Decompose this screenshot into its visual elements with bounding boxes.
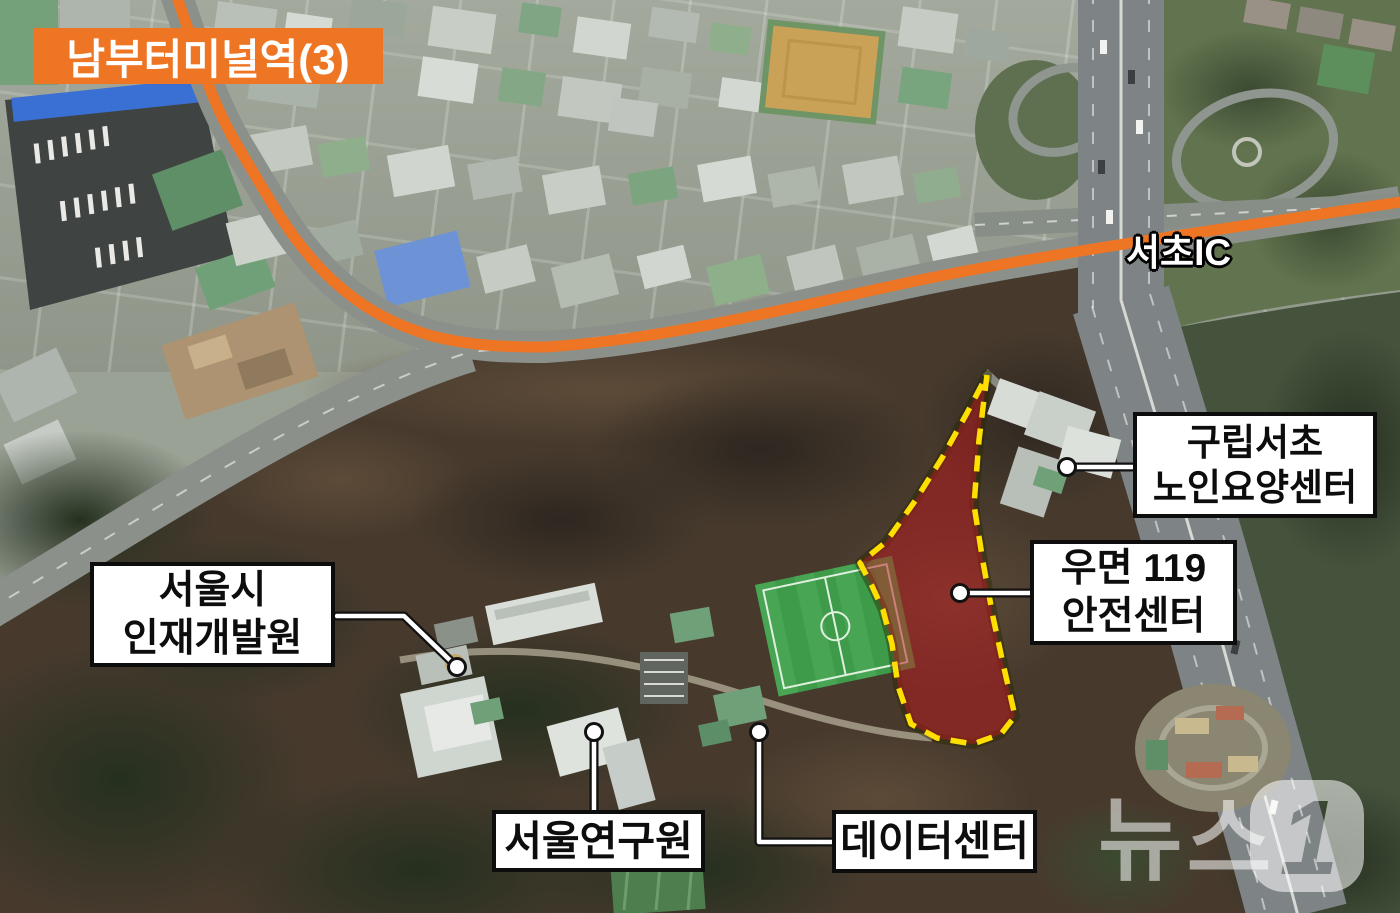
map-terrain-shape [317,136,370,178]
map-terrain-shape [898,67,953,110]
map-terrain-shape [637,245,692,290]
map-terrain-shape [762,22,883,121]
callout-seoul-hrd-center: 서울시 인재개발원 [90,562,335,667]
callout-line: 구립서초 [1187,420,1323,465]
callout-line: 데이터센터 [840,816,1029,866]
map-terrain-shape [1317,44,1376,94]
map-terrain-shape [897,6,958,53]
watermark-logo-one [1250,780,1364,892]
map-terrain-shape [1146,740,1168,770]
callout-line: 안전센터 [1062,593,1206,641]
map-terrain-shape [387,145,455,197]
callout-line: 노인요양센터 [1153,465,1357,510]
map-terrain-shape [718,77,766,113]
map-terrain-shape [1128,70,1135,84]
map-terrain-shape [1098,160,1105,174]
map-terrain-shape [417,56,478,103]
callout-line: 우면 119 [1061,545,1207,593]
callout-umyeon-119-safety-center: 우면 119 안전센터 [1030,540,1237,645]
news-map-graphic: 1 [0,0,1400,913]
map-terrain-shape [374,230,471,307]
map-terrain-shape [842,155,904,204]
map-terrain-shape [590,370,930,530]
map-terrain-shape [551,253,619,308]
map-terrain-shape [608,97,658,137]
map-terrain-shape [628,166,679,206]
map-terrain-shape [542,165,606,214]
map-terrain-shape [518,2,562,37]
map-terrain-shape [161,302,318,419]
map-terrain-shape [428,6,497,55]
map-terrain-shape [467,156,522,200]
map-terrain-shape [1106,210,1113,224]
map-terrain-shape [767,166,820,208]
map-terrain-shape [913,166,962,203]
map-terrain-shape [476,244,536,293]
map-terrain-shape [587,725,601,739]
map-terrain-shape [697,156,757,203]
map-terrain-shape [498,67,546,107]
map-terrain-shape [1216,706,1244,720]
news1-watermark: 뉴스 [1090,772,1390,907]
map-terrain-shape [0,348,77,423]
map-terrain-shape [573,16,631,59]
station-label-nambu-terminal: 남부터미널역(3) [33,28,383,84]
callout-line: 서울연구원 [504,816,693,866]
map-terrain-shape [1228,756,1258,772]
watermark-text: 뉴스 [1098,790,1275,892]
map-terrain-shape [708,22,752,55]
map-terrain-shape [953,586,967,600]
callout-gurip-seocho-nursing-center: 구립서초 노인요양센터 [1133,412,1377,518]
map-terrain-shape [1136,120,1143,134]
map-terrain-shape [1060,460,1074,474]
map-terrain-shape [1100,40,1107,54]
callout-data-center: 데이터센터 [832,810,1037,873]
map-terrain-shape [963,27,1011,63]
map-terrain-shape [1175,718,1209,734]
callout-seoul-institute: 서울연구원 [492,810,705,872]
map-terrain-shape [450,660,464,674]
map-terrain-shape [648,7,700,43]
callout-line: 인재개발원 [123,615,302,663]
road-label-seocho-ic: 서초IC [1126,222,1231,276]
map-terrain-shape [752,725,766,739]
callout-line: 서울시 [159,567,267,615]
